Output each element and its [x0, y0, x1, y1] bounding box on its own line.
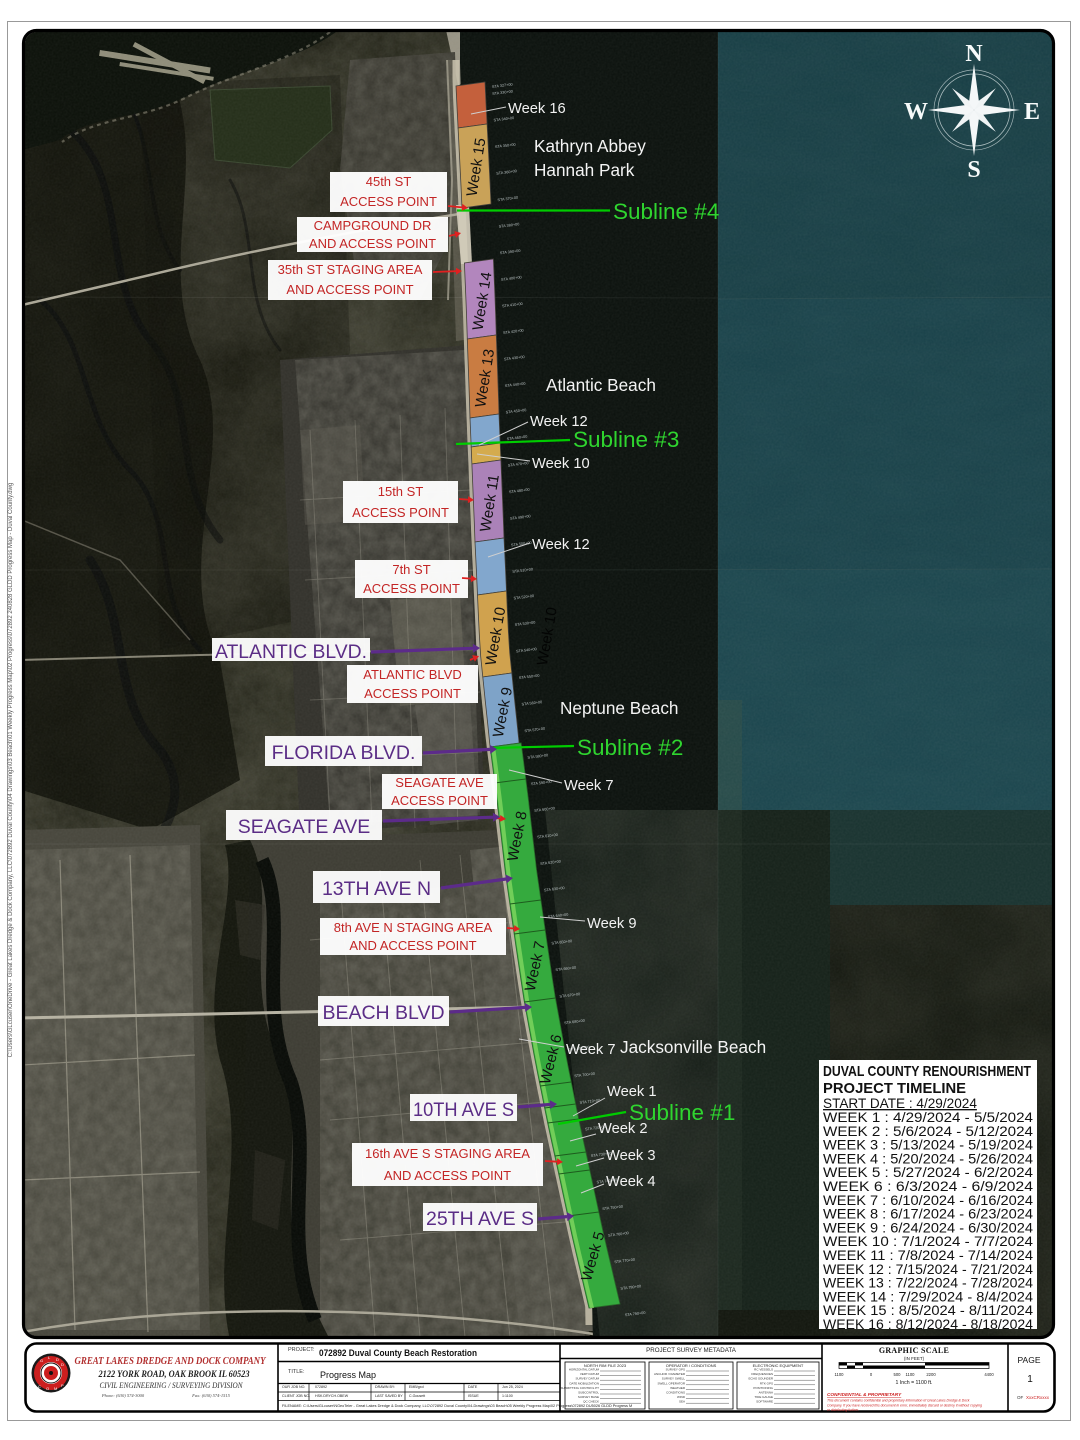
- svg-text:Company. If you have received: Company. If you have received this docum…: [827, 1404, 982, 1408]
- svg-text:SURVEY SWELL: SURVEY SWELL: [662, 1377, 686, 1381]
- svg-text:Progress Map: Progress Map: [320, 1370, 376, 1380]
- svg-text:WIND: WIND: [677, 1395, 686, 1399]
- svg-text:Fax: (630) 574-1515: Fax: (630) 574-1515: [191, 1393, 230, 1398]
- svg-text:ACCESS POINT: ACCESS POINT: [340, 194, 437, 209]
- svg-text:SWELL OPERATOR: SWELL OPERATOR: [658, 1381, 686, 1385]
- svg-text:Week 10: Week 10: [532, 456, 590, 472]
- svg-text:START DATE : 4/29/2024: START DATE : 4/29/2024: [823, 1096, 977, 1111]
- svg-text:QC CHECK: QC CHECK: [583, 1400, 599, 1404]
- svg-text:1100: 1100: [905, 1372, 915, 1377]
- svg-text:SEA: SEA: [679, 1400, 685, 1404]
- svg-text:RTK GPS: RTK GPS: [760, 1381, 773, 1385]
- svg-text:1 Inch = 1100 ft.: 1 Inch = 1100 ft.: [896, 1380, 933, 1386]
- svg-text:FLORIDA BLVD.: FLORIDA BLVD.: [272, 742, 416, 764]
- svg-text:This document contains confide: This document contains confidential and …: [827, 1399, 970, 1403]
- svg-text:E: E: [1024, 99, 1040, 125]
- svg-text:072892 Duval County Beach Rest: 072892 Duval County Beach Restoration: [319, 1348, 477, 1359]
- svg-text:FREQUENCIES: FREQUENCIES: [751, 1372, 773, 1376]
- svg-text:RC VESSELS: RC VESSELS: [754, 1368, 773, 1372]
- svg-text:Week 2: Week 2: [598, 1121, 648, 1137]
- svg-text:BEACH BLVD: BEACH BLVD: [322, 1002, 444, 1024]
- svg-text:Phone: (630) 574-3000: Phone: (630) 574-3000: [101, 1393, 145, 1398]
- svg-text:PROJECT SURVEY METADATA: PROJECT SURVEY METADATA: [646, 1347, 737, 1354]
- svg-text:GRAPHIC SCALE: GRAPHIC SCALE: [879, 1346, 949, 1355]
- svg-text:WEEK 13 : 7/22/2024 - 7/28/202: WEEK 13 : 7/22/2024 - 7/28/2024: [823, 1276, 1033, 1291]
- svg-text:ACCESS POINT: ACCESS POINT: [363, 581, 460, 596]
- svg-text:7th ST: 7th ST: [392, 562, 430, 577]
- svg-text:WEATHER: WEATHER: [670, 1386, 686, 1390]
- svg-text:1:1100: 1:1100: [502, 1394, 513, 1398]
- svg-text:FILENAME: C:\Users\GLcuser\N: FILENAME: C:\Users\GLcuser\NGeoTeler - G…: [282, 1404, 632, 1408]
- svg-text:CIVIL ENGINEERING / SURVEYING: CIVIL ENGINEERING / SURVEYING DIVISION: [100, 1380, 244, 1390]
- svg-text:OF: OF: [1017, 1395, 1024, 1400]
- svg-text:ATLANTIC BLVD: ATLANTIC BLVD: [363, 667, 461, 682]
- svg-text:Hannah Park: Hannah Park: [534, 160, 635, 180]
- svg-text:35th ST STAGING AREA: 35th ST STAGING AREA: [278, 262, 423, 277]
- svg-text:SUBCONTROL: SUBCONTROL: [578, 1391, 599, 1395]
- svg-text:PROJECT TIMELINE: PROJECT TIMELINE: [823, 1081, 966, 1097]
- svg-text:Week 16: Week 16: [508, 101, 566, 117]
- svg-text:500: 500: [894, 1372, 902, 1377]
- svg-text:C:\Users\GLcuser\OneDrive - Gr: C:\Users\GLcuser\OneDrive - Great Lakes …: [8, 483, 14, 1058]
- svg-text:Week 7: Week 7: [564, 778, 614, 794]
- svg-text:AND ACCESS POINT: AND ACCESS POINT: [309, 236, 436, 251]
- svg-text:TIDE GAUGE: TIDE GAUGE: [754, 1395, 773, 1399]
- svg-text:DRAWN BY:: DRAWN BY:: [375, 1385, 395, 1389]
- svg-text:WEEK 4 : 5/20/2024 - 5/26/2024: WEEK 4 : 5/20/2024 - 5/26/2024: [823, 1151, 1033, 1166]
- svg-text:D: D: [56, 1357, 59, 1362]
- svg-text:PAGE: PAGE: [1018, 1355, 1041, 1365]
- svg-text:GREAT LAKES DREDGE AND DOCK CO: GREAT LAKES DREDGE AND DOCK COMPANY: [75, 1356, 267, 1367]
- svg-text:CONFIDENTIAL & PROPRIETARY: CONFIDENTIAL & PROPRIETARY: [827, 1392, 902, 1397]
- svg-text:ACCESS POINT: ACCESS POINT: [352, 505, 449, 520]
- svg-text:Atlantic Beach: Atlantic Beach: [546, 375, 656, 395]
- svg-text:CLIENT JOB NO.: CLIENT JOB NO.: [282, 1394, 310, 1398]
- svg-text:PROJECT:: PROJECT:: [288, 1347, 315, 1353]
- svg-text:N: N: [965, 41, 983, 67]
- svg-text:WEEK 1 : 4/29/2024 - 5/5/2024: WEEK 1 : 4/29/2024 - 5/5/2024: [823, 1110, 1033, 1125]
- svg-text:WEEK 2 : 5/6/2024 - 5/12/2024: WEEK 2 : 5/6/2024 - 5/12/2024: [823, 1124, 1033, 1139]
- svg-text:13TH AVE N: 13TH AVE N: [322, 878, 431, 900]
- svg-text:DUVAL COUNTY RENOURISHMENT: DUVAL COUNTY RENOURISHMENT: [823, 1064, 1031, 1080]
- svg-text:WEEK 14 : 7/29/2024 - 8/4/2024: WEEK 14 : 7/29/2024 - 8/4/2024: [823, 1289, 1033, 1304]
- svg-text:WEEK 6 : 6/3/2024 - 6/9/2024: WEEK 6 : 6/3/2024 - 6/9/2024: [823, 1179, 1034, 1194]
- svg-text:WEEK 7 : 6/10/2024 - 6/16/2024: WEEK 7 : 6/10/2024 - 6/16/2024: [823, 1193, 1033, 1208]
- svg-text:HSK.DRYCH.OBEW: HSK.DRYCH.OBEW: [315, 1394, 349, 1398]
- svg-text:072892: 072892: [315, 1385, 327, 1389]
- svg-text:AND ACCESS POINT: AND ACCESS POINT: [349, 938, 476, 953]
- svg-text:WEEK 5 : 5/27/2024 - 6/2/2024: WEEK 5 : 5/27/2024 - 6/2/2024: [823, 1165, 1033, 1180]
- svg-text:WEEK 9 : 6/24/2024 - 6/30/202: WEEK 9 : 6/24/2024 - 6/30/2024: [823, 1220, 1033, 1235]
- svg-text:SURVEY DATUM: SURVEY DATUM: [575, 1377, 599, 1381]
- svg-text:WEEK 8 : 6/17/2024 - 6/23/2024: WEEK 8 : 6/17/2024 - 6/23/2024: [823, 1207, 1033, 1222]
- svg-text:C: C: [38, 1384, 41, 1389]
- svg-text:ECHO SOUNDER: ECHO SOUNDER: [748, 1377, 773, 1381]
- svg-text:XxxCRxxxx: XxxCRxxxx: [1026, 1395, 1050, 1400]
- svg-text:G: G: [40, 1358, 43, 1363]
- svg-text:(IN FEET): (IN FEET): [904, 1356, 925, 1361]
- svg-text:10TH AVE S: 10TH AVE S: [413, 1099, 514, 1121]
- svg-text:TITLE:: TITLE:: [288, 1369, 305, 1375]
- svg-text:EMB/gxd: EMB/gxd: [409, 1385, 424, 1389]
- svg-text:Week 3: Week 3: [606, 1148, 656, 1164]
- svg-text:Week 1: Week 1: [607, 1084, 657, 1100]
- svg-text:ANCHOR / DIAMETER: ANCHOR / DIAMETER: [654, 1372, 686, 1376]
- svg-text:OUR JOB NO.: OUR JOB NO.: [282, 1385, 305, 1389]
- svg-text:DATE: DATE: [468, 1385, 478, 1389]
- svg-text:Neptune Beach: Neptune Beach: [560, 698, 679, 718]
- svg-text:AND ACCESS POINT: AND ACCESS POINT: [286, 282, 413, 297]
- svg-text:SEAGATE AVE: SEAGATE AVE: [238, 816, 371, 838]
- svg-text:CAMPGROUND DR: CAMPGROUND DR: [314, 218, 432, 233]
- svg-text:45th ST: 45th ST: [366, 174, 412, 189]
- svg-text:P: P: [61, 1383, 64, 1388]
- svg-text:WEEK 16 : 8/12/2024 - 8/18/202: WEEK 16 : 8/12/2024 - 8/18/2024: [823, 1317, 1033, 1332]
- svg-text:1100: 1100: [834, 1372, 844, 1377]
- svg-text:25TH AVE S: 25TH AVE S: [426, 1208, 534, 1230]
- svg-text:15th ST: 15th ST: [378, 484, 424, 499]
- svg-text:1: 1: [1027, 1374, 1033, 1385]
- svg-text:Week 12: Week 12: [530, 414, 588, 430]
- svg-text:16th AVE S STAGING AREA: 16th AVE S STAGING AREA: [365, 1146, 530, 1161]
- svg-text:ACCESS POINT: ACCESS POINT: [364, 686, 461, 701]
- svg-text:C.Gousett: C.Gousett: [409, 1394, 425, 1398]
- svg-text:M: M: [54, 1386, 57, 1391]
- svg-text:CONDITIONS: CONDITIONS: [666, 1391, 685, 1395]
- svg-text:ATLANTIC BLVD.: ATLANTIC BLVD.: [215, 641, 367, 663]
- svg-text:SURVEY OPS: SURVEY OPS: [666, 1368, 685, 1372]
- svg-text:ACCESS POINT: ACCESS POINT: [391, 793, 488, 808]
- svg-text:Subline #2: Subline #2: [577, 735, 683, 760]
- svg-text:WEEK 15 : 8/5/2024 - 8/11/2024: WEEK 15 : 8/5/2024 - 8/11/2024: [823, 1303, 1033, 1318]
- svg-text:WEEK 3 : 5/13/2024 - 5/19/2024: WEEK 3 : 5/13/2024 - 5/19/2024: [823, 1138, 1033, 1153]
- svg-text:DATE MOBILIZATION: DATE MOBILIZATION: [569, 1381, 599, 1385]
- svg-text:S: S: [967, 157, 980, 183]
- svg-text:SUBMITTING CONTROL PT: SUBMITTING CONTROL PT: [560, 1386, 599, 1390]
- svg-text:O: O: [46, 1386, 49, 1391]
- svg-text:Week 7: Week 7: [566, 1042, 616, 1058]
- svg-text:W: W: [904, 99, 928, 125]
- svg-text:8th AVE N STAGING AREA: 8th AVE N STAGING AREA: [334, 920, 493, 935]
- svg-text:WEEK 11 : 7/8/2024 - 7/14/2024: WEEK 11 : 7/8/2024 - 7/14/2024: [823, 1248, 1033, 1263]
- svg-text:2122 YORK ROAD, OAK BROOK: 2122 YORK ROAD, OAK BROOK IL 60523: [98, 1369, 250, 1379]
- svg-text:Subline #3: Subline #3: [573, 427, 679, 452]
- svg-text:Jun 25, 2024: Jun 25, 2024: [502, 1385, 523, 1389]
- svg-text:SOFTWARE: SOFTWARE: [756, 1400, 773, 1404]
- svg-text:AND ACCESS POINT: AND ACCESS POINT: [384, 1168, 511, 1183]
- svg-text:Kathryn Abbey: Kathryn Abbey: [534, 136, 646, 156]
- svg-text:Week 4: Week 4: [606, 1174, 656, 1190]
- svg-text:or distributing further.: or distributing further.: [827, 1408, 859, 1412]
- svg-text:Jacksonville Beach: Jacksonville Beach: [620, 1037, 766, 1057]
- svg-text:2200: 2200: [926, 1372, 936, 1377]
- svg-text:LAST SAVED BY: LAST SAVED BY: [375, 1394, 403, 1398]
- svg-text:Week 9: Week 9: [587, 916, 637, 932]
- svg-text:Subline #4: Subline #4: [613, 199, 719, 224]
- svg-text:Week 12: Week 12: [532, 537, 590, 553]
- svg-text:VERT DATUM: VERT DATUM: [580, 1372, 600, 1376]
- svg-text:ANTENNA: ANTENNA: [759, 1391, 773, 1395]
- svg-text:POSITIONING: POSITIONING: [753, 1386, 773, 1390]
- svg-text:ISSUE: ISSUE: [468, 1394, 479, 1398]
- svg-text:SURVEY BASE: SURVEY BASE: [578, 1395, 599, 1399]
- svg-text:D: D: [61, 1362, 64, 1367]
- svg-text:HORIZONTAL DATUM: HORIZONTAL DATUM: [569, 1368, 600, 1372]
- svg-text:4400: 4400: [984, 1372, 994, 1377]
- svg-text:WEEK 12 : 7/15/2024 - 7/21/202: WEEK 12 : 7/15/2024 - 7/21/2024: [823, 1262, 1033, 1277]
- svg-text:WEEK 10 : 7/1/2024 - 7/7/2024: WEEK 10 : 7/1/2024 - 7/7/2024: [823, 1234, 1033, 1249]
- svg-text:SEAGATE AVE: SEAGATE AVE: [395, 775, 484, 790]
